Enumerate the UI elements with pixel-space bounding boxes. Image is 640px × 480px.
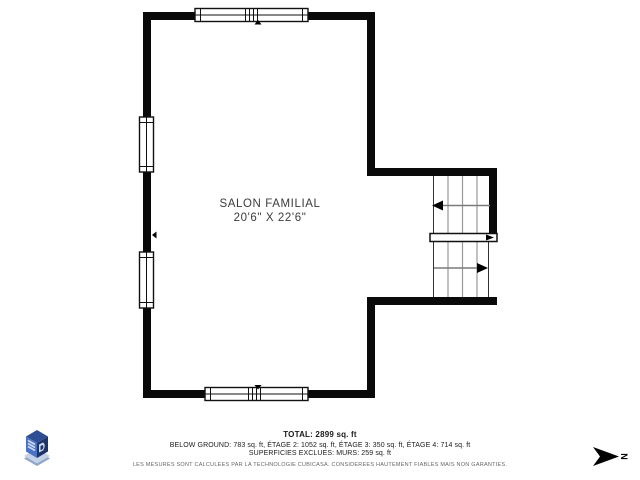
- window-top: [195, 9, 308, 22]
- window-left-upper: [140, 117, 154, 172]
- north-arrow-icon: N: [591, 445, 629, 471]
- footer-exclusions: SUPERFICIES EXCLUES: MURS: 259 sq. ft: [0, 450, 640, 457]
- room-dimensions: 20'6" X 22'6": [145, 212, 395, 224]
- wall-alcove-right: [489, 168, 497, 236]
- footer-total: TOTAL: 2899 sq. ft: [0, 430, 640, 439]
- room-name: SALON FAMILIAL: [145, 198, 395, 210]
- stair-landing: [430, 234, 497, 242]
- stair-treads-upper: [448, 176, 477, 234]
- stair-treads-lower: [448, 242, 477, 298]
- wall-alcove-top: [367, 168, 497, 176]
- footer-breakdown: BELOW GROUND: 783 sq. ft, ÉTAGE 2: 1052 …: [0, 442, 640, 449]
- stair-arrow-down-icon: [434, 263, 488, 273]
- floor-plan: [0, 0, 640, 480]
- wall-alcove-bottom: [367, 297, 497, 305]
- footer-disclaimer: LES MESURES SONT CALCULEES PAR LA TECHNO…: [0, 462, 640, 468]
- footer-summary: TOTAL: 2899 sq. ft BELOW GROUND: 783 sq.…: [0, 430, 640, 468]
- room-label: SALON FAMILIAL 20'6" X 22'6": [145, 198, 395, 224]
- wall-right-upper: [367, 12, 375, 176]
- staircase: [430, 176, 497, 297]
- north-label: N: [619, 453, 629, 460]
- stair-arrow-up-icon: [432, 201, 490, 211]
- marker-left-icon: [152, 232, 157, 239]
- cubicasa-3d-logo-icon: [23, 428, 51, 468]
- window-bottom: [205, 388, 308, 401]
- window-left-lower: [140, 252, 154, 308]
- wall-right-lower: [367, 297, 375, 398]
